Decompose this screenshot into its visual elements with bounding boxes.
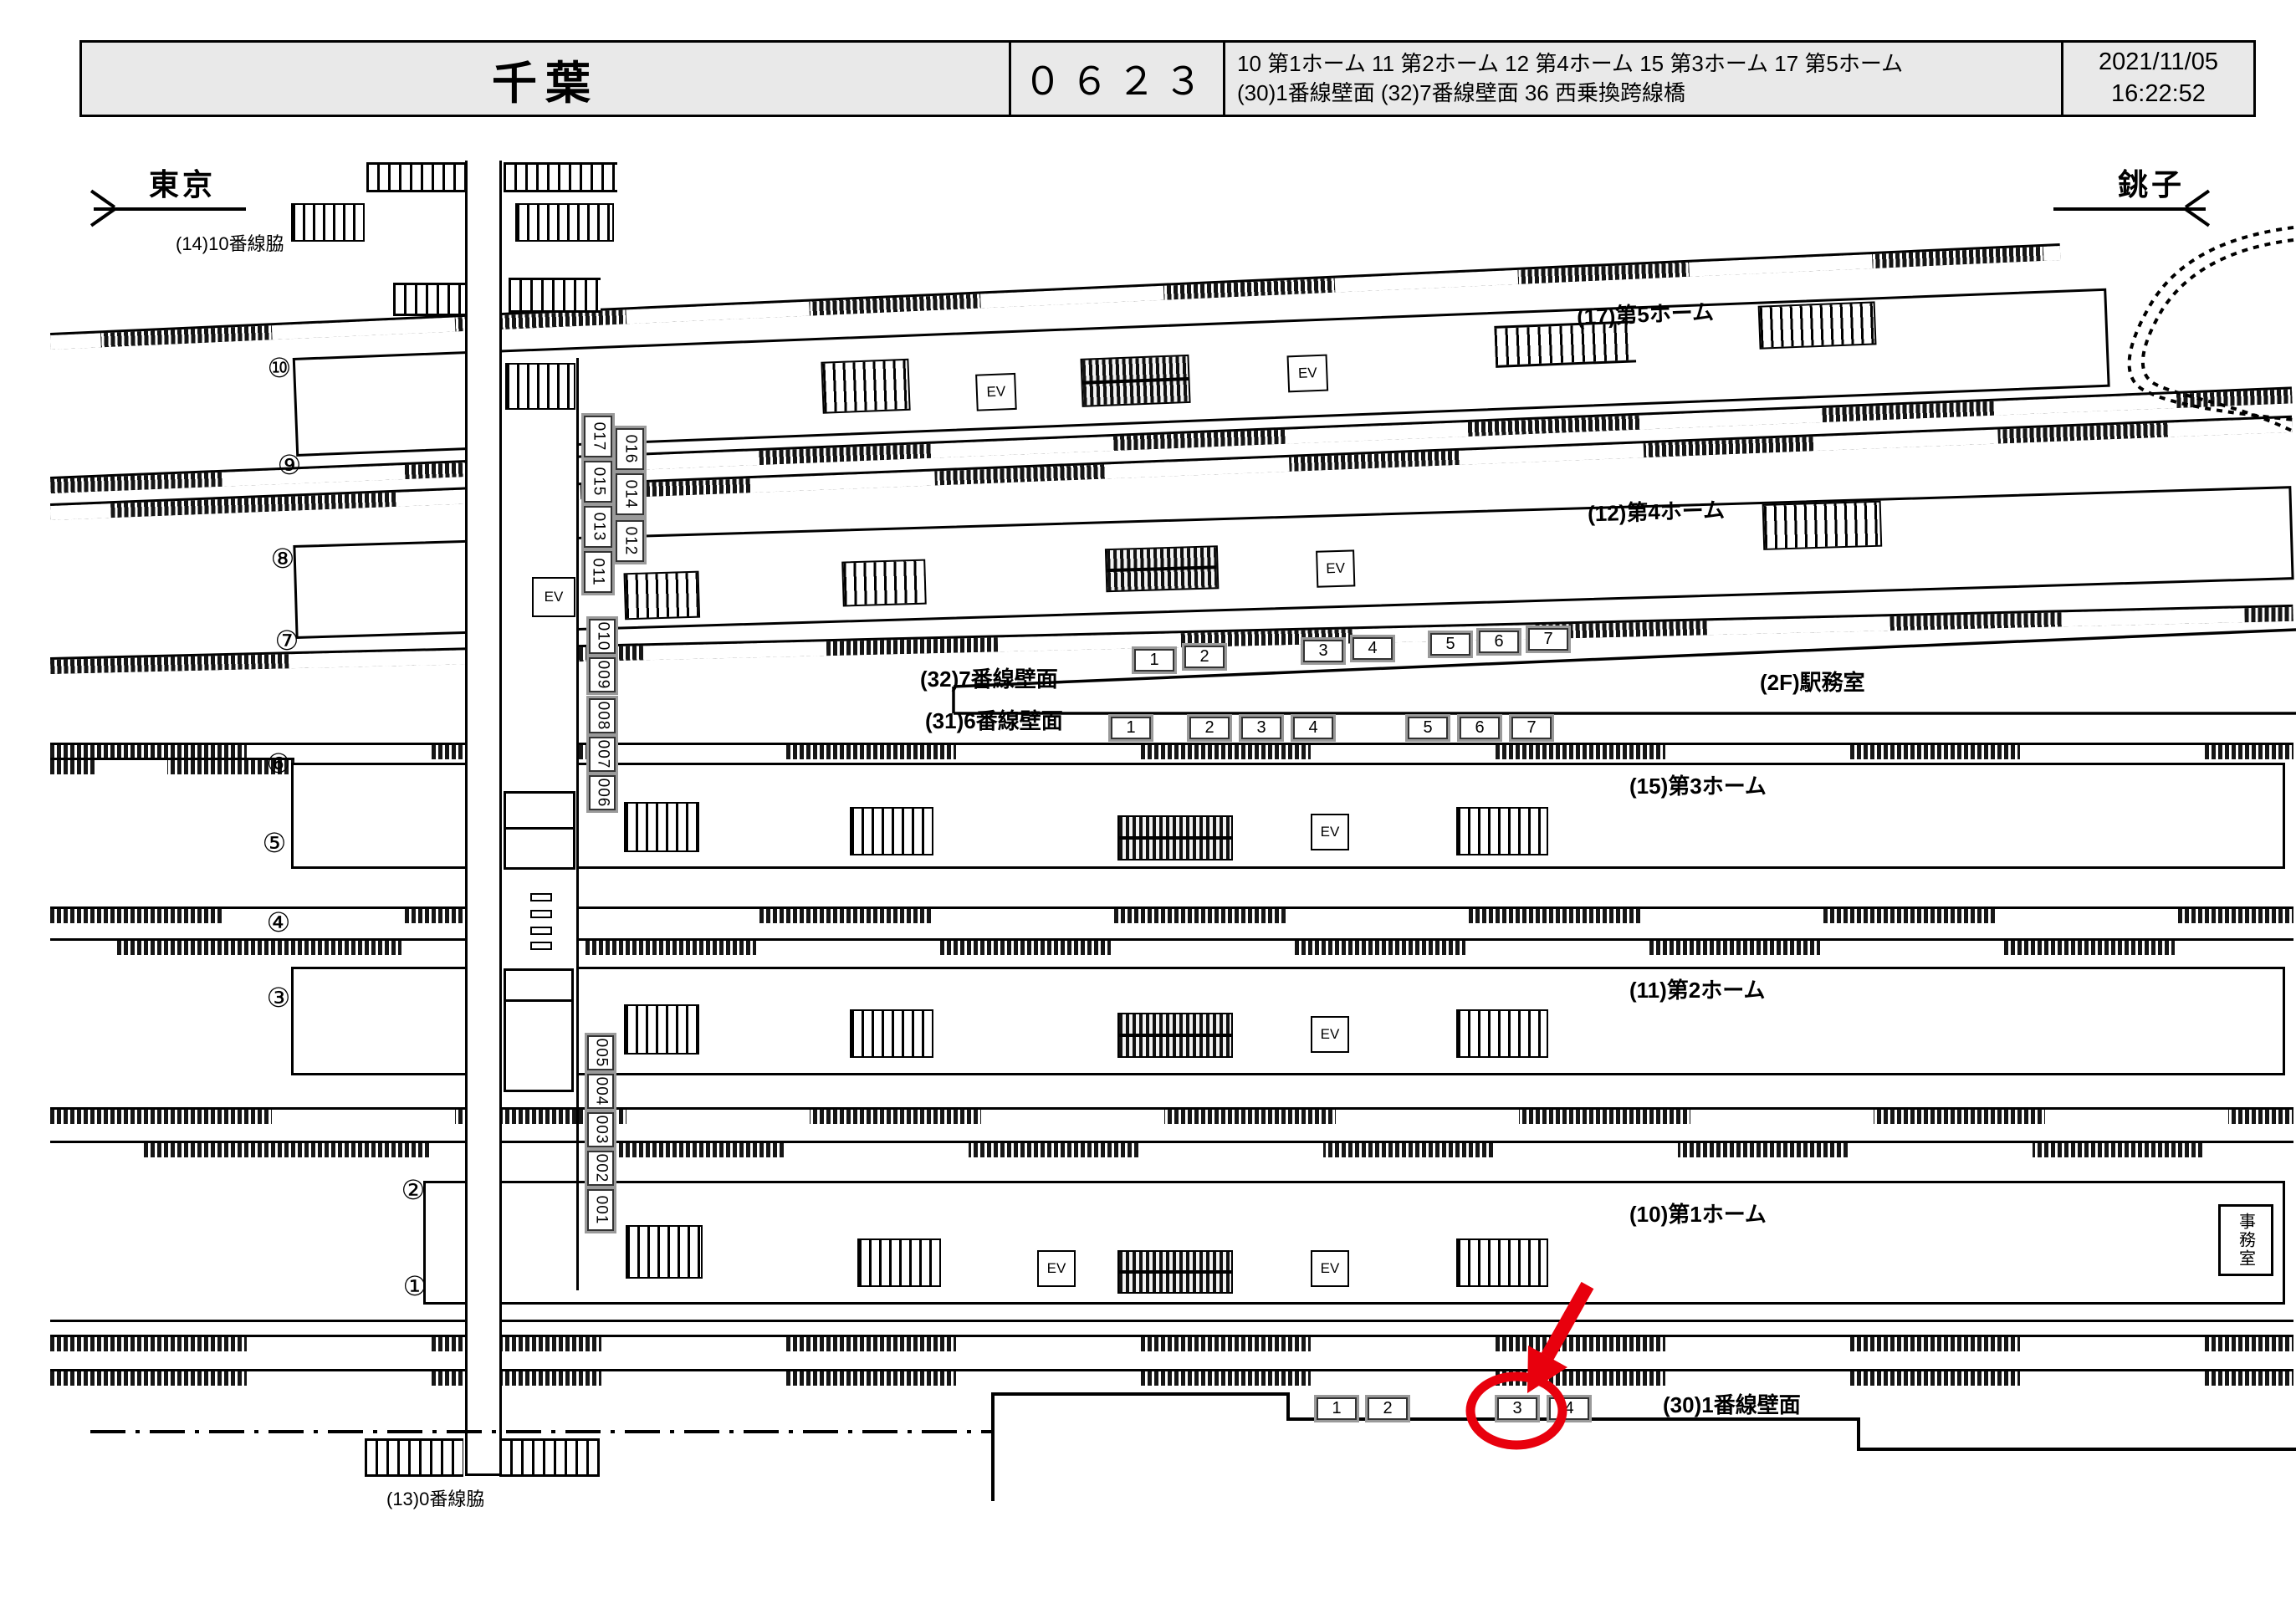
position-box-014: 014: [616, 473, 644, 515]
escalator-icon: [1117, 815, 1233, 861]
wall6-box-5: 5: [1408, 717, 1448, 739]
position-box-010: 010: [589, 619, 616, 654]
stairs-icon: [624, 802, 699, 852]
wall7-box-6: 6: [1479, 631, 1519, 653]
west-crossover-bridge: [465, 161, 502, 1476]
position-box-008: 008: [589, 698, 616, 733]
stairs-icon: [291, 203, 365, 242]
platform-1: EV EV: [423, 1181, 2285, 1305]
elevator-box: EV: [1287, 355, 1329, 393]
end-number-3: ③: [262, 981, 295, 1014]
choshi-arrow-line: [2053, 207, 2206, 211]
station-code: ０６２３: [1009, 43, 1223, 115]
station-diagram-page: 千葉 ０６２３ 10 第1ホーム 11 第2ホーム 12 第4ホーム 15 第3…: [0, 0, 2296, 1624]
legend-line-2: (30)1番線壁面 (32)7番線壁面 36 西乗換跨線橋: [1237, 79, 1685, 108]
stairs-icon: [850, 807, 933, 855]
stairs-icon: [841, 559, 927, 607]
elevator-box: EV: [975, 373, 1017, 411]
direction-tokyo-label: 東京: [149, 161, 216, 204]
direction-choshi-label: 銚子: [2118, 161, 2185, 204]
wall1-box-3-highlighted: 3: [1497, 1397, 1537, 1420]
position-box-005: 005: [587, 1035, 614, 1070]
track-line: [50, 938, 2293, 955]
escalator-icon: [1105, 545, 1219, 592]
elevator-box: EV: [532, 577, 575, 617]
wall7-box-3: 3: [1303, 640, 1343, 662]
timestamp-block: 2021/11/05 16:22:52: [2061, 43, 2253, 115]
stairs-icon: [365, 1438, 463, 1477]
tokyo-arrow-head: [90, 190, 115, 209]
ev-label: EV: [986, 383, 1005, 401]
choshi-arrow-head: [2185, 190, 2210, 209]
track-line: [50, 1369, 2293, 1386]
steps-bar: [530, 927, 552, 935]
ev-label: EV: [1047, 1260, 1066, 1277]
wall1-label: (30)1番線壁面: [1663, 1388, 1801, 1419]
wall6-box-7: 7: [1511, 717, 1552, 739]
wall6-label: (31)6番線壁面: [925, 704, 1063, 735]
steps-bar: [530, 893, 552, 901]
steps-bar: [530, 910, 552, 918]
wall1-outline: [993, 1394, 2296, 1501]
position-box-006: 006: [589, 775, 616, 810]
end-number-6: ⑥: [262, 747, 295, 780]
station-name: 千葉: [82, 43, 1009, 115]
ev-label: EV: [545, 589, 564, 605]
end-number-8: ⑧: [266, 542, 299, 575]
end-number-2: ②: [396, 1173, 430, 1207]
stairs-icon: [1456, 807, 1548, 855]
legend-line-1: 10 第1ホーム 11 第2ホーム 12 第4ホーム 15 第3ホーム 17 第…: [1237, 49, 1903, 79]
platform3-label: (15)第3ホーム: [1629, 769, 1767, 800]
wall1-box-1: 1: [1317, 1397, 1357, 1420]
wall1-box-4: 4: [1549, 1397, 1589, 1420]
track-line: [50, 743, 2293, 759]
wall7-box-1: 1: [1134, 649, 1174, 672]
room-divider: [506, 999, 571, 1002]
platform1-label: (10)第1ホーム: [1629, 1198, 1767, 1228]
escalator-icon: [1080, 355, 1190, 407]
ev-label: EV: [1321, 824, 1340, 840]
escalator-icon: [1117, 1250, 1233, 1294]
corridor-room: [504, 791, 575, 870]
platform2-label: (11)第2ホーム: [1629, 973, 1765, 1004]
stairs-icon: [499, 1438, 600, 1477]
position-box-004: 004: [587, 1074, 614, 1109]
track-line: [50, 1141, 2293, 1157]
position-box-017: 017: [584, 416, 612, 457]
wall6-box-1: 1: [1111, 717, 1151, 739]
date-text: 2021/11/05: [2099, 47, 2218, 79]
position-box-015: 015: [584, 461, 612, 503]
stairs-icon: [1456, 1238, 1548, 1287]
position-box-002: 002: [587, 1151, 614, 1186]
corridor-room: [504, 968, 574, 1092]
wall7-box-5: 5: [1430, 633, 1470, 656]
track-stub: [50, 758, 294, 774]
office-2f-label: (2F)駅務室: [1760, 666, 1865, 697]
wall6-box-4: 4: [1293, 717, 1333, 739]
legend-block: 10 第1ホーム 11 第2ホーム 12 第4ホーム 15 第3ホーム 17 第…: [1223, 43, 2061, 115]
header-bar: 千葉 ０６２３ 10 第1ホーム 11 第2ホーム 12 第4ホーム 15 第3…: [79, 40, 2256, 117]
stairs-icon: [515, 203, 614, 242]
stairs-icon: [626, 1225, 703, 1279]
stairs-icon: [821, 359, 910, 414]
track-line: [50, 906, 2293, 923]
ev-label: EV: [1326, 560, 1345, 578]
platform5-label: (17)第5ホーム: [1576, 295, 1714, 331]
track-line: [50, 1335, 2293, 1351]
track-line: [50, 1107, 2293, 1124]
corridor-wall-line: [576, 1095, 579, 1290]
stairs-icon: [366, 162, 467, 192]
stairs-icon: [504, 162, 617, 192]
room-divider: [506, 827, 573, 830]
wall6-box-3: 3: [1241, 717, 1281, 739]
stairs-icon: [1456, 1009, 1548, 1058]
wall7-label: (32)7番線壁面: [920, 662, 1058, 693]
stairs-icon: [393, 283, 465, 316]
ev-label: EV: [1298, 365, 1317, 382]
end-number-10: ⑩: [263, 351, 296, 385]
stairs-icon: [857, 1238, 941, 1287]
ev-label: EV: [1321, 1260, 1340, 1277]
elevator-box: EV: [1311, 1016, 1349, 1053]
office-room-box: 事務室: [2218, 1204, 2273, 1276]
elevator-box: EV: [1316, 549, 1355, 587]
wall1-box-2: 2: [1368, 1397, 1408, 1420]
position-box-016: 016: [616, 428, 644, 470]
stairs-icon: [1762, 501, 1883, 550]
stairs-icon: [509, 278, 601, 313]
stairs-icon: [624, 571, 701, 620]
end-number-9: ⑨: [273, 448, 306, 482]
track0-side-label: (13)0番線脇: [386, 1484, 484, 1511]
choshi-arrow-head: [2185, 208, 2210, 227]
end-number-5: ⑤: [258, 826, 291, 860]
tokyo-arrow-line: [94, 207, 246, 211]
wall6-box-2: 2: [1189, 717, 1230, 739]
position-box-012: 012: [616, 520, 644, 562]
steps-bar: [530, 942, 552, 950]
stairs-icon: [1758, 301, 1877, 349]
position-box-011: 011: [584, 551, 612, 593]
wall7-box-2: 2: [1184, 646, 1225, 668]
position-box-009: 009: [589, 657, 616, 692]
tokyo-arrow-head: [90, 208, 115, 227]
elevator-box: EV: [1311, 1250, 1349, 1287]
elevator-box: EV: [1037, 1250, 1076, 1287]
stairs-icon: [505, 363, 575, 410]
track10-side-label: (14)10番線脇: [176, 229, 284, 256]
end-number-1: ①: [398, 1269, 432, 1303]
end-number-7: ⑦: [270, 624, 304, 657]
time-text: 16:22:52: [2111, 79, 2206, 110]
platform4-label: (12)第4ホーム: [1587, 493, 1725, 529]
wall7-box-4: 4: [1353, 637, 1393, 660]
elevator-box: EV: [1311, 814, 1349, 850]
position-box-007: 007: [589, 737, 616, 772]
position-box-013: 013: [584, 506, 612, 548]
position-box-003: 003: [587, 1112, 614, 1147]
track-rail-line: [50, 1320, 2293, 1322]
position-box-001: 001: [587, 1189, 614, 1231]
stairs-icon: [850, 1009, 933, 1058]
ev-label: EV: [1321, 1026, 1340, 1043]
stairs-icon: [624, 1004, 699, 1055]
wall7-box-7: 7: [1528, 628, 1568, 651]
end-number-4: ④: [262, 906, 295, 939]
escalator-icon: [1117, 1013, 1233, 1058]
wall6-box-6: 6: [1460, 717, 1500, 739]
